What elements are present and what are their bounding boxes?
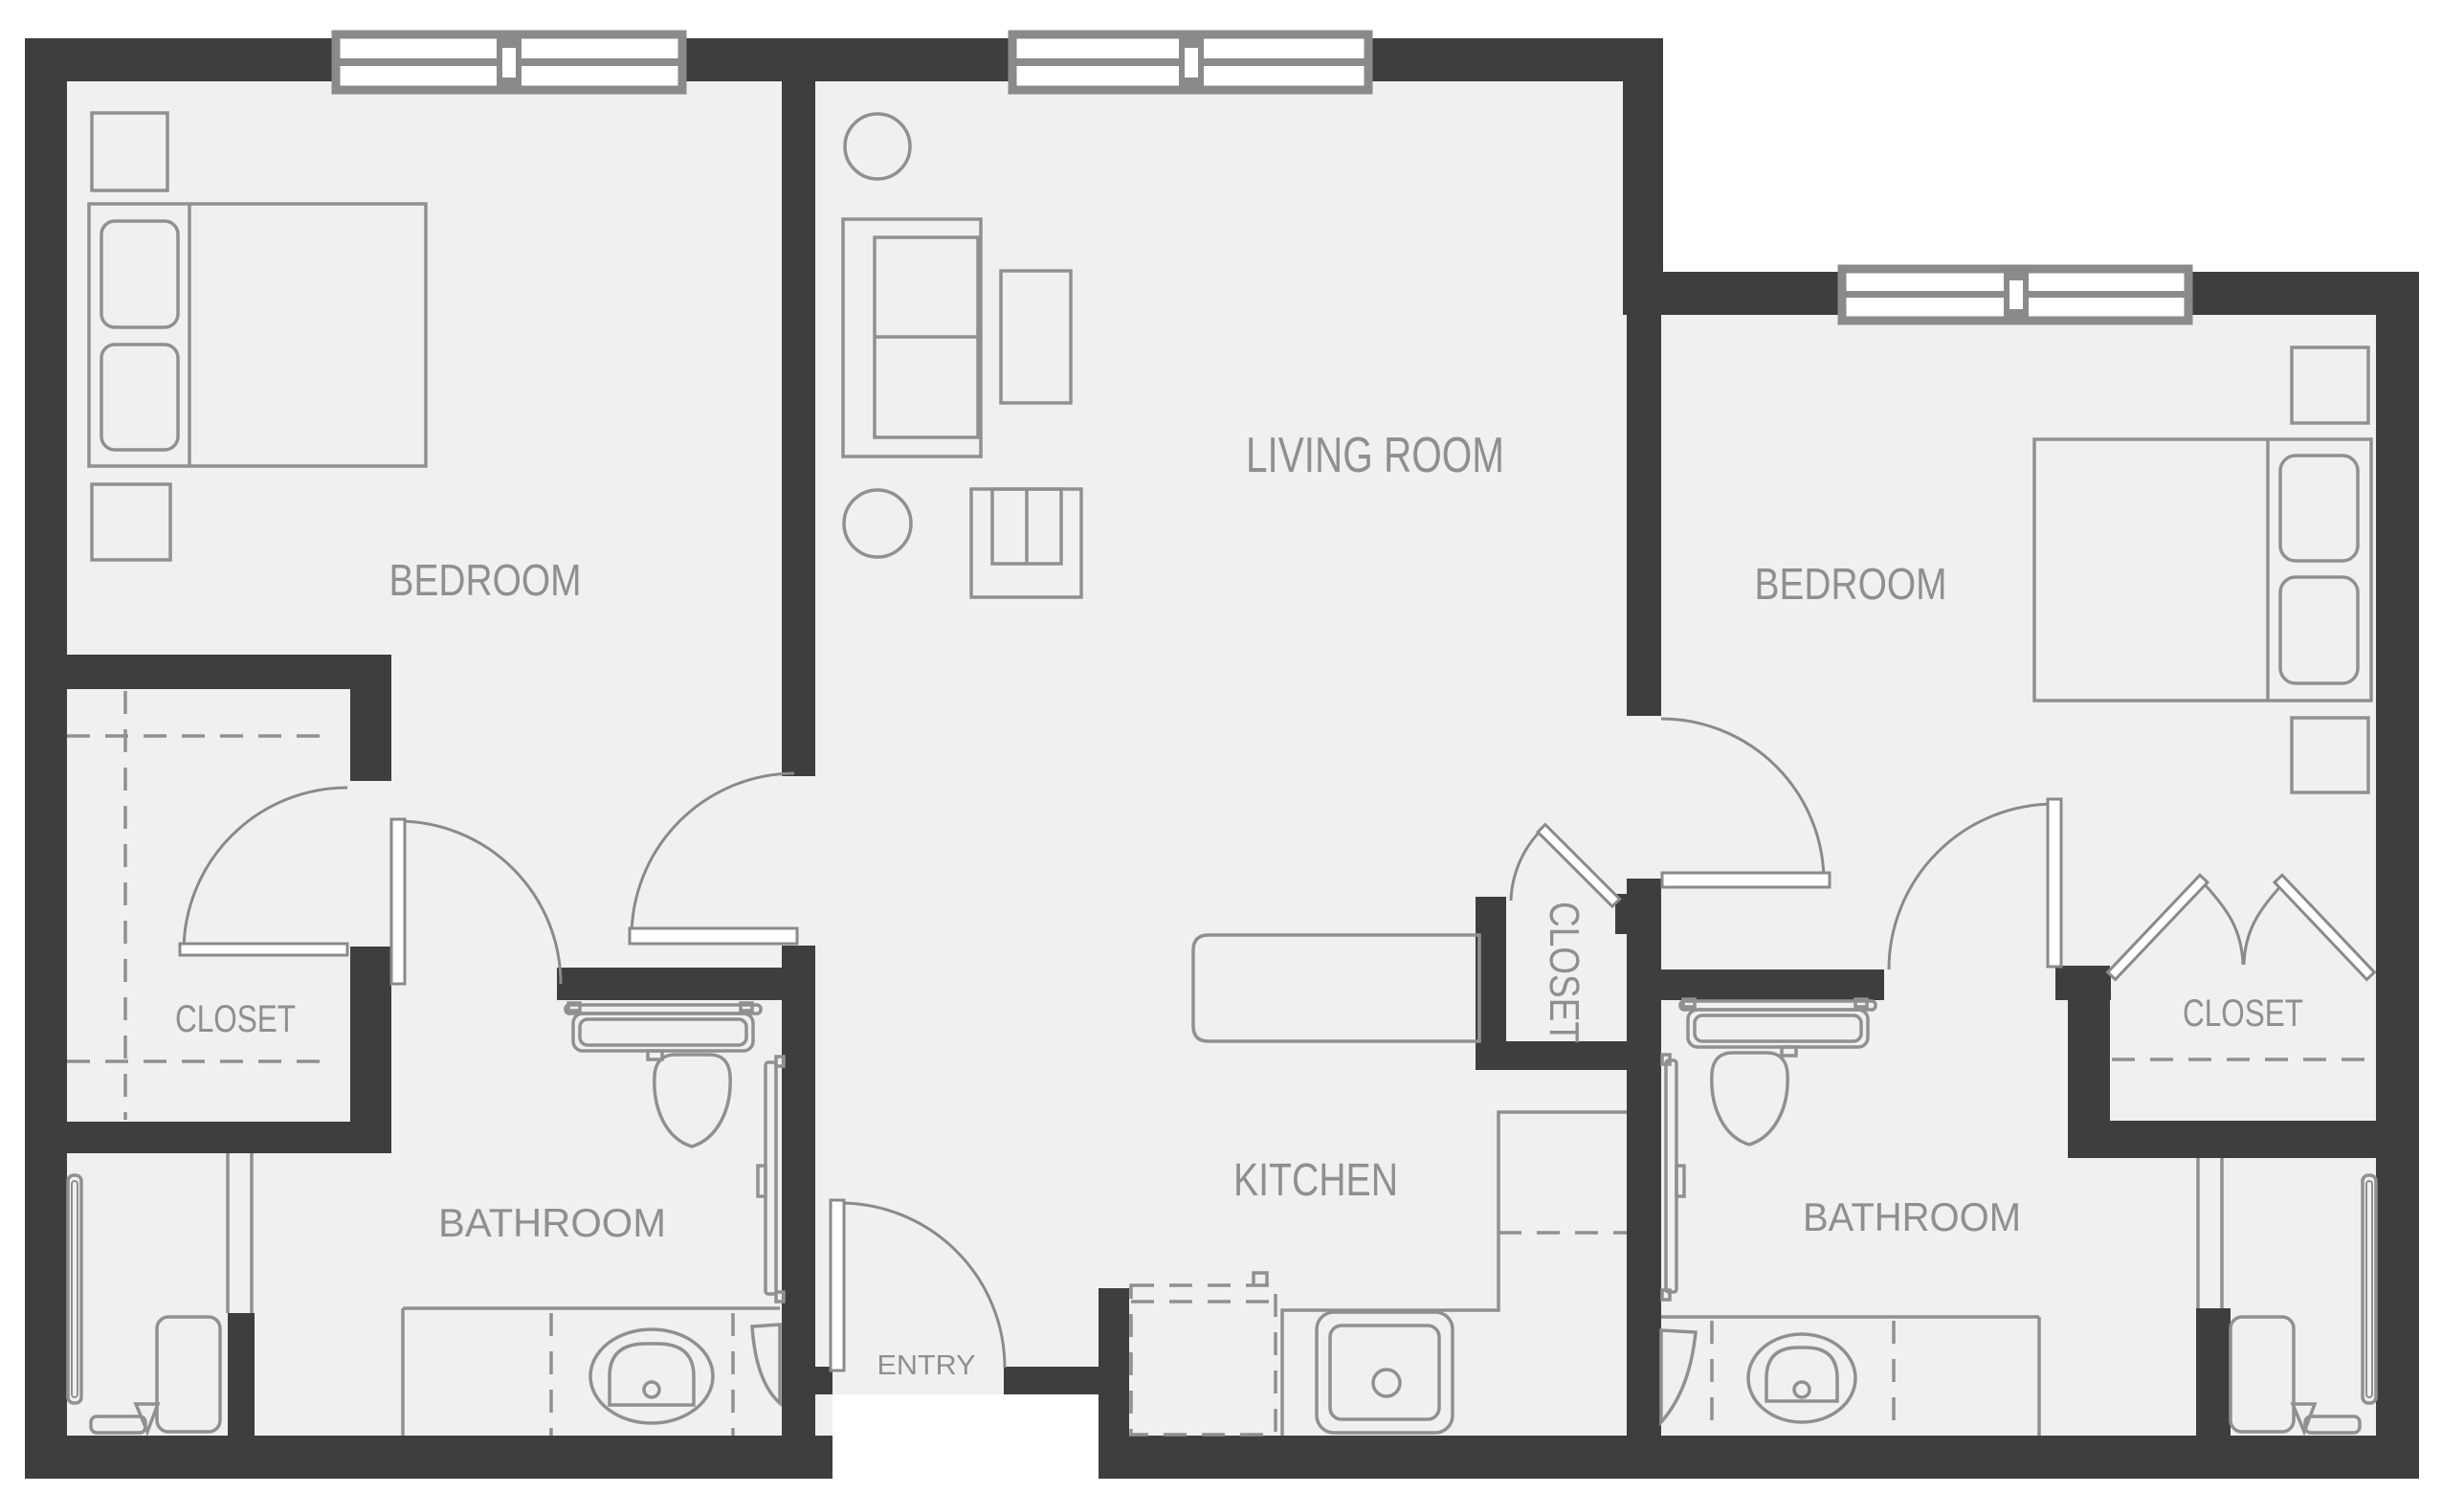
svg-text:CLOSET: CLOSET xyxy=(1541,902,1587,1043)
svg-text:CLOSET: CLOSET xyxy=(2183,992,2303,1035)
svg-text:KITCHEN: KITCHEN xyxy=(1233,1155,1398,1206)
svg-text:LIVING ROOM: LIVING ROOM xyxy=(1246,428,1504,483)
svg-text:BATHROOM: BATHROOM xyxy=(1803,1194,2021,1239)
svg-text:BEDROOM: BEDROOM xyxy=(1755,559,1947,609)
svg-text:ENTRY: ENTRY xyxy=(877,1350,976,1381)
svg-text:CLOSET: CLOSET xyxy=(175,998,296,1040)
svg-text:BEDROOM: BEDROOM xyxy=(389,555,582,605)
svg-text:BATHROOM: BATHROOM xyxy=(438,1200,666,1245)
